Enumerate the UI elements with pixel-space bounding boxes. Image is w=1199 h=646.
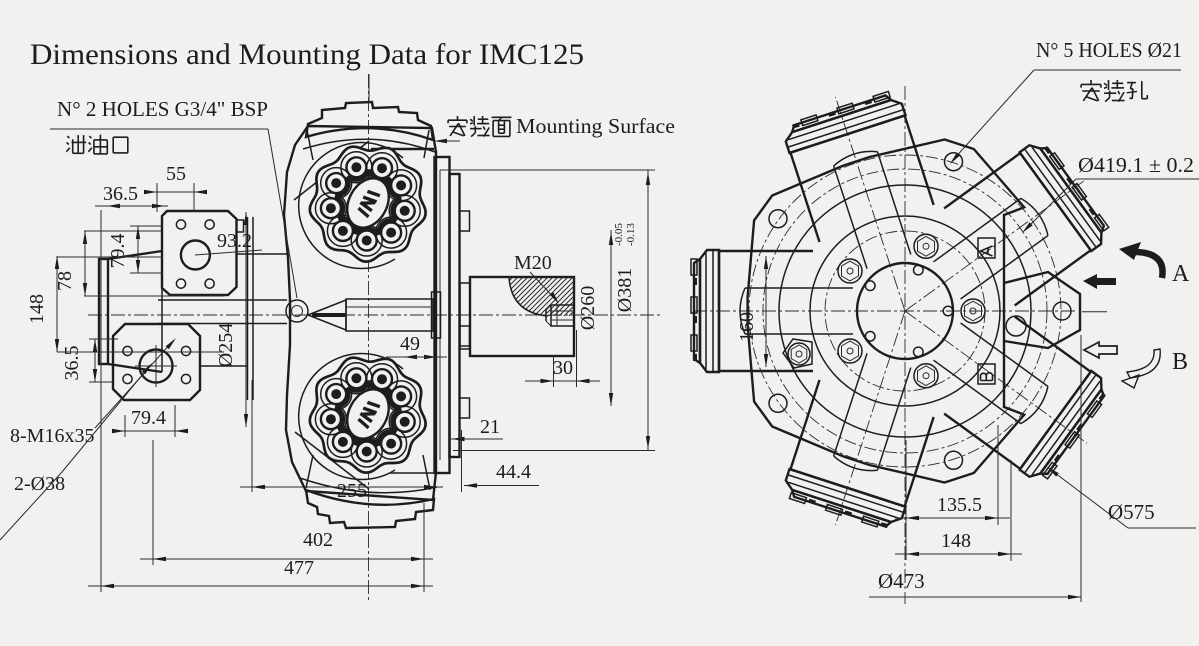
svg-text:Ø254: Ø254	[215, 323, 237, 367]
svg-text:Ø260: Ø260	[577, 286, 599, 330]
svg-text:79.4: 79.4	[107, 234, 129, 269]
svg-text:36.5: 36.5	[103, 183, 138, 205]
svg-text:49: 49	[400, 333, 420, 355]
svg-text:148: 148	[941, 530, 971, 552]
svg-text:148: 148	[26, 294, 48, 324]
svg-text:8-M16x35: 8-M16x35	[10, 425, 94, 447]
svg-text:N° 5 HOLES Ø21: N° 5 HOLES Ø21	[1036, 38, 1182, 62]
svg-text:93.2: 93.2	[217, 230, 252, 252]
svg-text:Dimensions and Mounting Data f: Dimensions and Mounting Data for IMC125	[30, 38, 584, 71]
svg-text:402: 402	[303, 529, 333, 551]
svg-text:Ø473: Ø473	[878, 569, 925, 593]
svg-text:21: 21	[480, 416, 500, 438]
svg-text:79.4: 79.4	[131, 407, 166, 429]
svg-text:Ø381: Ø381	[614, 268, 636, 312]
svg-text:N° 2 HOLES G3/4" BSP: N° 2 HOLES G3/4" BSP	[57, 97, 268, 121]
svg-text:Mounting Surface: Mounting Surface	[516, 114, 675, 138]
svg-text:477: 477	[284, 557, 314, 579]
svg-text:36.5: 36.5	[61, 346, 83, 381]
svg-text:135.5: 135.5	[937, 494, 982, 516]
svg-text:B: B	[1172, 349, 1188, 375]
svg-text:Ø575: Ø575	[1108, 500, 1155, 524]
svg-text:30: 30	[553, 357, 573, 379]
svg-text:255: 255	[337, 480, 367, 502]
svg-text:55: 55	[166, 163, 186, 185]
svg-text:160: 160	[736, 312, 758, 342]
svg-text:-0.05: -0.05	[613, 223, 625, 246]
svg-text:A: A	[1172, 261, 1190, 287]
svg-text:M20: M20	[514, 252, 552, 274]
svg-text:Ø419.1 ± 0.2: Ø419.1 ± 0.2	[1078, 153, 1194, 177]
svg-text:-0.13: -0.13	[625, 223, 637, 246]
svg-text:44.4: 44.4	[496, 461, 531, 483]
